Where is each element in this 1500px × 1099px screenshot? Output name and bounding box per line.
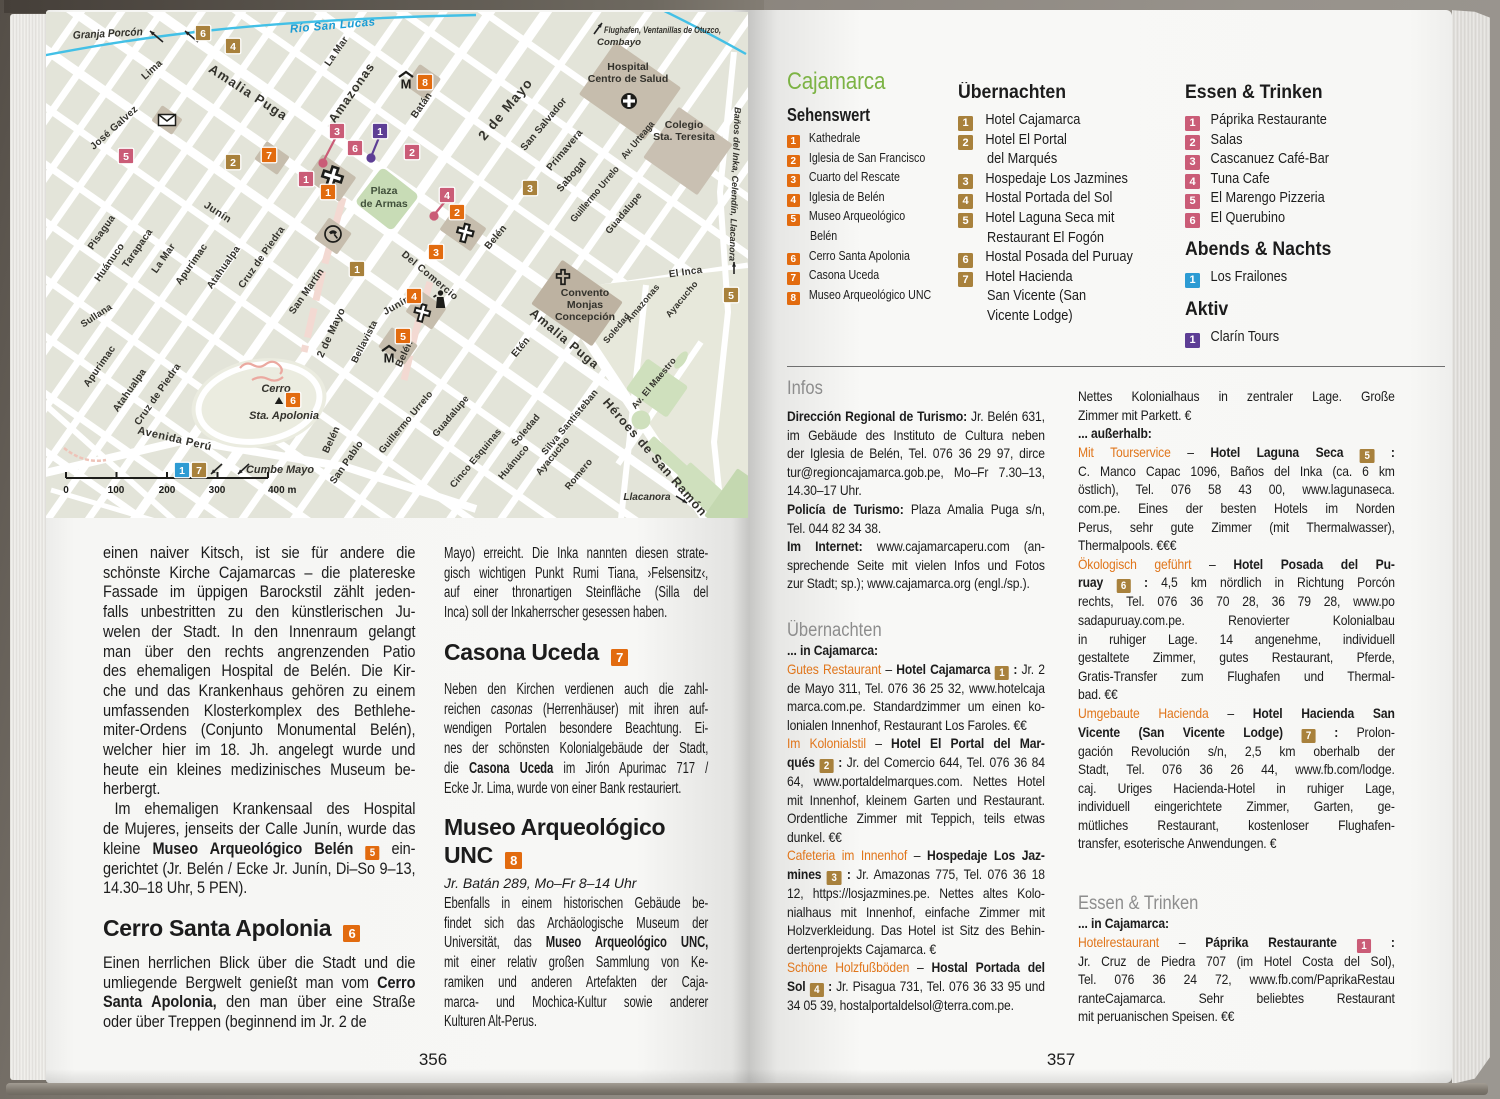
svg-text:7: 7	[266, 150, 272, 162]
svg-text:5: 5	[123, 151, 129, 163]
svg-text:Cumbe Mayo: Cumbe Mayo	[246, 464, 314, 476]
svg-text:5: 5	[400, 331, 406, 343]
svg-text:6: 6	[352, 143, 358, 155]
svg-text:6: 6	[200, 28, 206, 40]
svg-text:2: 2	[230, 157, 236, 169]
svg-text:1: 1	[325, 187, 331, 199]
svg-text:Plaza: Plaza	[371, 185, 398, 197]
svg-text:Hospital: Hospital	[607, 61, 649, 73]
svg-text:1: 1	[354, 264, 360, 276]
svg-text:3: 3	[433, 247, 439, 259]
svg-text:Sta. Teresita: Sta. Teresita	[653, 131, 715, 143]
svg-text:Combayo: Combayo	[597, 37, 641, 48]
svg-text:Flughafen, Ventanillas de Otuz: Flughafen, Ventanillas de Otuzco,	[604, 25, 721, 36]
svg-text:8: 8	[422, 77, 428, 89]
svg-text:M: M	[401, 77, 412, 92]
svg-text:0: 0	[63, 485, 69, 496]
svg-text:4: 4	[444, 190, 450, 202]
svg-text:6: 6	[290, 395, 296, 407]
svg-text:Monjas: Monjas	[567, 299, 603, 311]
svg-text:Concepción: Concepción	[555, 311, 615, 323]
svg-text:2: 2	[409, 147, 415, 159]
svg-text:Convento: Convento	[561, 287, 609, 299]
svg-text:7: 7	[196, 465, 202, 477]
svg-text:de Armas: de Armas	[360, 198, 408, 210]
svg-text:M: M	[384, 351, 395, 366]
svg-text:1: 1	[303, 174, 309, 186]
svg-text:4: 4	[411, 291, 417, 303]
svg-text:Centro de Salud: Centro de Salud	[588, 73, 669, 85]
svg-text:1: 1	[179, 465, 185, 477]
svg-text:Llacanora: Llacanora	[623, 492, 671, 503]
svg-text:400 m: 400 m	[268, 485, 296, 496]
svg-text:1: 1	[377, 126, 383, 138]
svg-text:3: 3	[334, 126, 340, 138]
svg-text:200: 200	[159, 485, 176, 496]
svg-text:5: 5	[728, 290, 734, 302]
svg-text:2: 2	[454, 207, 460, 219]
svg-text:300: 300	[209, 485, 226, 496]
svg-text:100: 100	[108, 485, 125, 496]
svg-text:4: 4	[230, 41, 236, 53]
svg-text:3: 3	[527, 183, 533, 195]
svg-text:Sta. Apolonia: Sta. Apolonia	[249, 410, 319, 422]
svg-text:Colegio: Colegio	[665, 119, 704, 131]
